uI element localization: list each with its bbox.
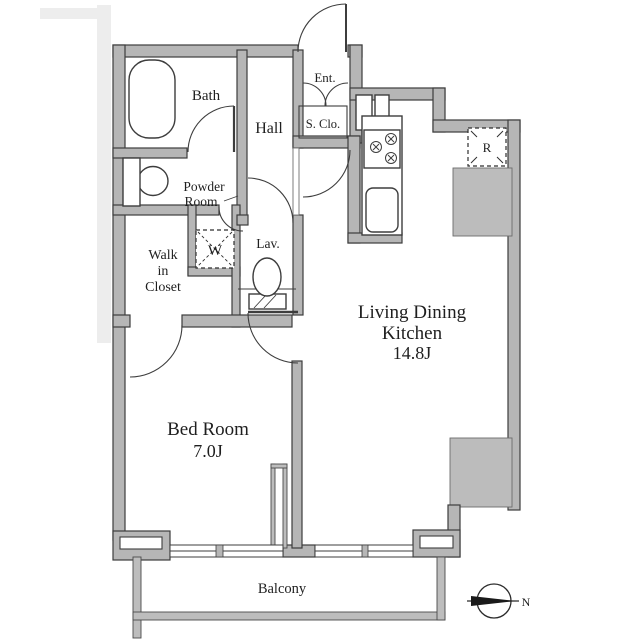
wic-label-3: Closet [145, 280, 181, 295]
wic-door-arc [130, 325, 182, 377]
balcony-walls [133, 557, 445, 638]
corner-window-right [420, 536, 453, 548]
powder-label-1: Powder [183, 179, 225, 194]
bedroom-area-label: 7.0J [193, 441, 223, 461]
washer-mark: W [208, 243, 223, 259]
neighbor-unit-traces [40, 5, 111, 343]
balcony-label: Balcony [258, 581, 307, 597]
toilet [238, 258, 296, 309]
pipe-space [123, 158, 140, 206]
wic-label-2: in [158, 264, 169, 279]
entrance-door-arc [298, 4, 346, 52]
shoe-closet-door-left [303, 83, 326, 106]
floor-plan-svg: Bath Powder Room Hall Ent. S. Clo. Walk … [0, 0, 640, 640]
bath-label: Bath [192, 88, 221, 104]
fixtures [123, 60, 506, 309]
door-pocket [271, 464, 287, 548]
structural-column-bottom [450, 438, 512, 507]
kitchen-sink [366, 188, 398, 232]
wic-label-1: Walk [148, 248, 177, 263]
bedroom-label: Bed Room [167, 419, 249, 440]
shoe-closet-door-right [325, 83, 348, 106]
structural-column-top [453, 168, 512, 236]
lav-door-arc [248, 178, 293, 223]
ldk-area-label: 14.8J [393, 343, 432, 363]
powder-sink [138, 167, 168, 196]
bathtub [129, 60, 175, 138]
ldk-label-1: Living Dining [358, 302, 467, 323]
bath-door-arc [188, 106, 234, 152]
corner-window-left [120, 537, 162, 549]
powder-label-2: Room [184, 194, 218, 209]
compass-north-label: N [522, 595, 531, 609]
fridge-mark: R [483, 140, 492, 155]
hall-label: Hall [255, 120, 283, 137]
hall-ldk-door-arc [303, 150, 350, 197]
ent-label: Ent. [314, 70, 335, 85]
lav-label: Lav. [256, 236, 280, 251]
ldk-label-2: Kitchen [382, 323, 443, 344]
shoe-closet-label: S. Clo. [306, 117, 340, 131]
floor-plan-page: Bath Powder Room Hall Ent. S. Clo. Walk … [0, 0, 640, 640]
compass [467, 584, 519, 618]
